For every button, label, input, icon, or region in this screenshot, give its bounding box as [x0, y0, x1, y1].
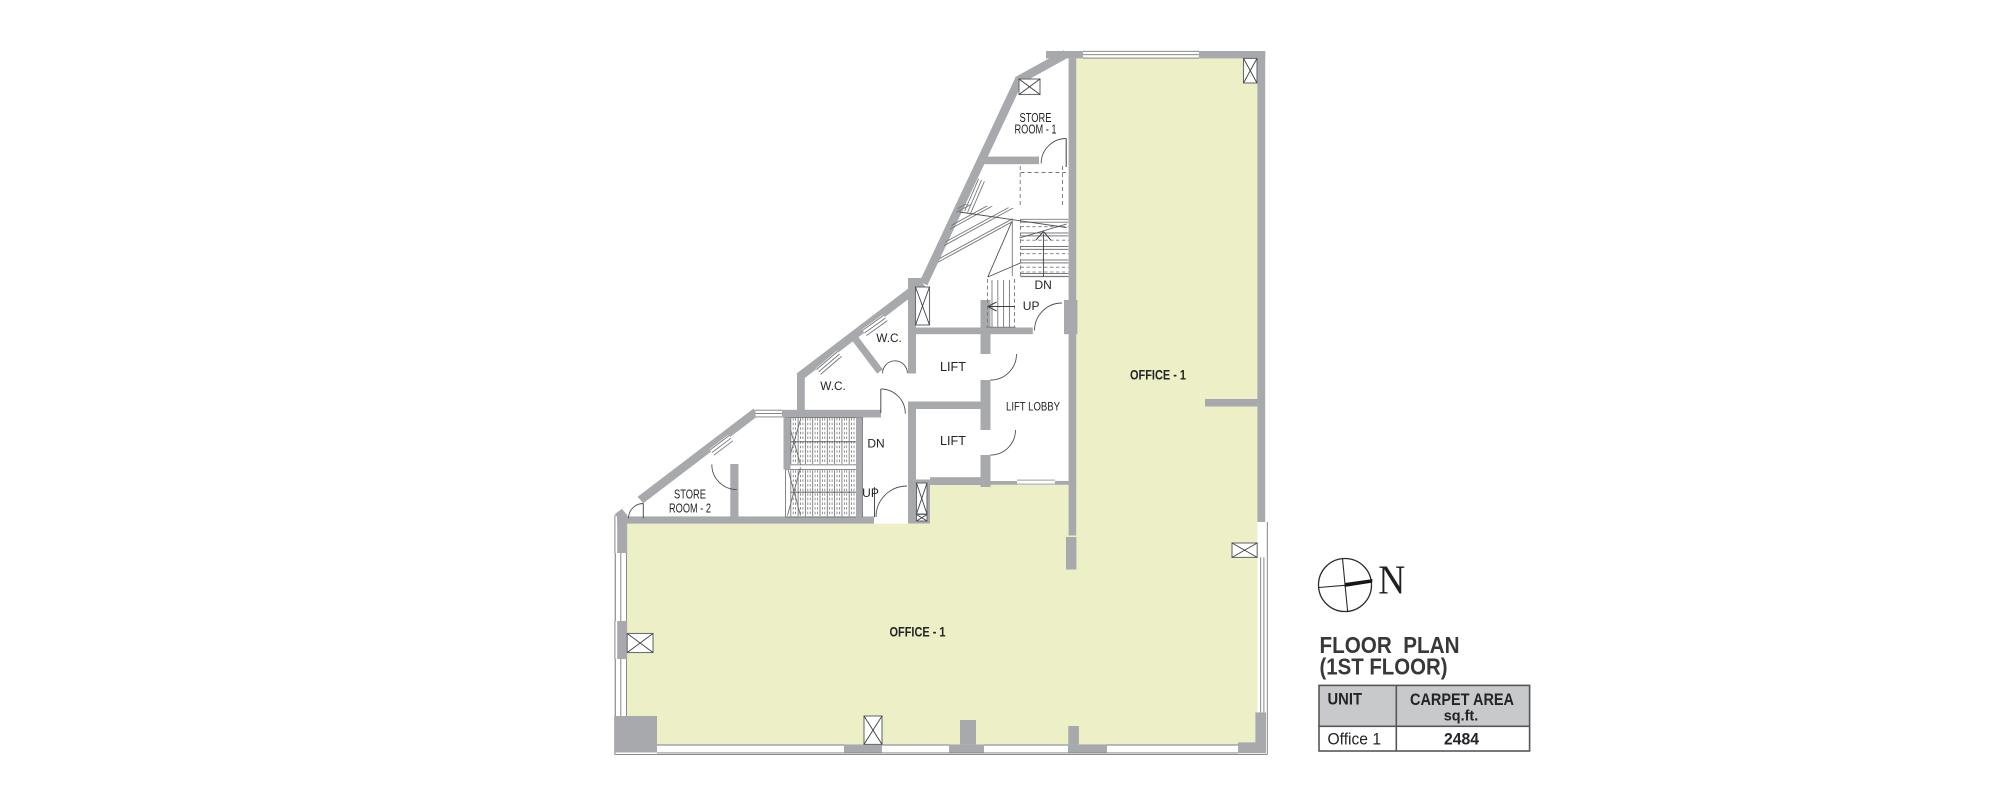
svg-text:UP: UP: [1023, 299, 1040, 313]
svg-text:STORE: STORE: [674, 487, 706, 502]
svg-text:OFFICE - 1: OFFICE - 1: [890, 624, 946, 639]
svg-text:CARPET AREA: CARPET AREA: [1410, 691, 1514, 709]
svg-text:sq.ft.: sq.ft.: [1444, 708, 1479, 725]
svg-text:ROOM - 1: ROOM - 1: [1015, 121, 1057, 136]
svg-text:(1ST FLOOR): (1ST FLOOR): [1320, 653, 1448, 679]
svg-text:Office 1: Office 1: [1328, 730, 1382, 748]
svg-text:ROOM - 2: ROOM - 2: [669, 500, 711, 515]
svg-text:LIFT: LIFT: [940, 433, 966, 448]
svg-text:N: N: [1378, 556, 1405, 602]
svg-text:2484: 2484: [1444, 730, 1480, 748]
svg-text:DN: DN: [867, 436, 884, 450]
svg-text:LIFT LOBBY: LIFT LOBBY: [1006, 400, 1060, 414]
svg-text:UP: UP: [862, 486, 879, 500]
svg-text:OFFICE - 1: OFFICE - 1: [1130, 367, 1186, 382]
svg-text:W.C.: W.C.: [876, 331, 902, 345]
svg-text:DN: DN: [1035, 278, 1052, 292]
svg-text:UNIT: UNIT: [1328, 690, 1363, 708]
svg-text:LIFT: LIFT: [940, 359, 966, 374]
svg-text:W.C.: W.C.: [820, 379, 846, 393]
